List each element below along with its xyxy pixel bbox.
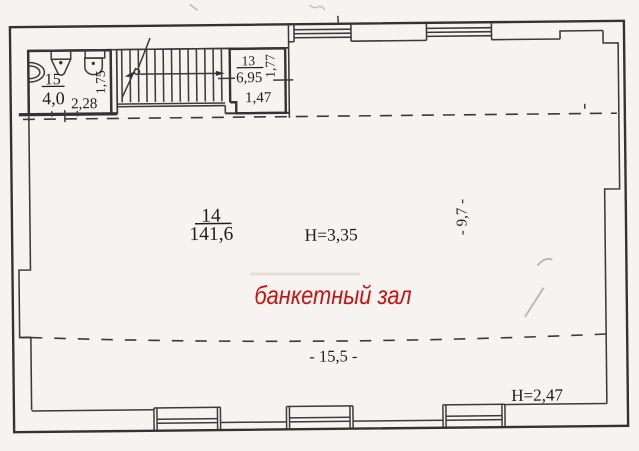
- svg-text:1,47: 1,47: [245, 90, 272, 106]
- svg-text:1,77: 1,77: [263, 54, 278, 78]
- svg-text:141,6: 141,6: [189, 224, 233, 245]
- svg-text:банкетный зал: банкетный зал: [254, 281, 412, 310]
- svg-text:1,75: 1,75: [93, 70, 108, 94]
- svg-text:6,95: 6,95: [236, 70, 262, 86]
- svg-text:4,0: 4,0: [42, 88, 65, 108]
- svg-text:H=3,35: H=3,35: [304, 224, 358, 245]
- svg-text:- 9,7 -: - 9,7 -: [454, 199, 470, 235]
- svg-text:H=2,47: H=2,47: [511, 385, 563, 405]
- svg-text:2,28: 2,28: [71, 96, 97, 112]
- svg-text:13: 13: [241, 53, 255, 68]
- svg-text:- 15,5 -: - 15,5 -: [309, 346, 357, 366]
